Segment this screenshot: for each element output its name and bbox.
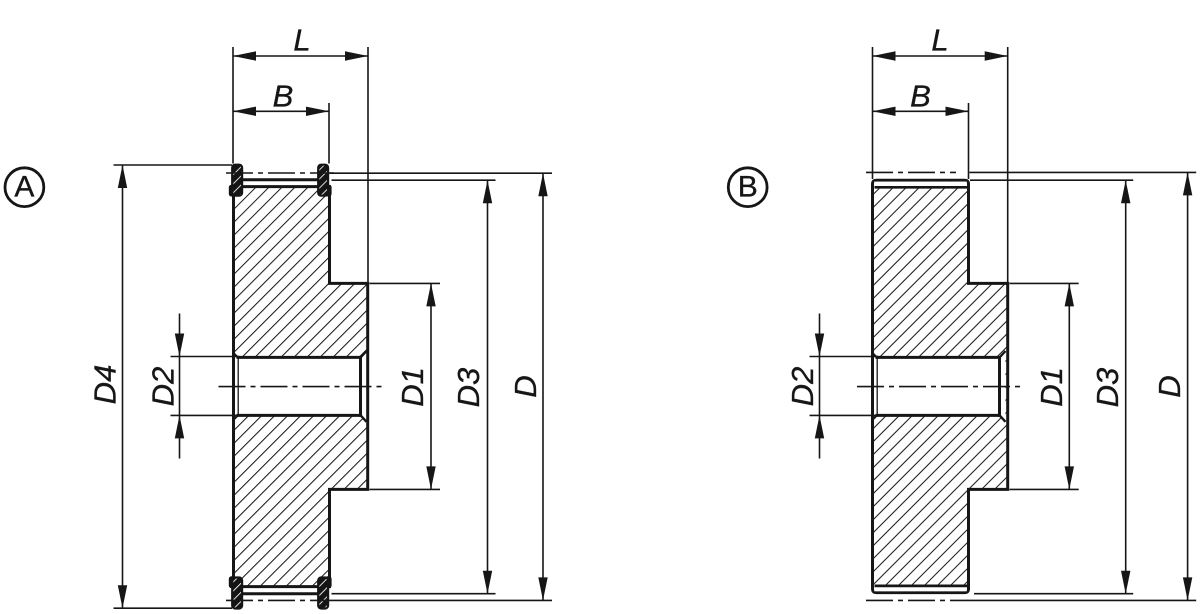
svg-text:D1: D1 <box>1034 367 1069 407</box>
svg-text:L: L <box>293 23 310 58</box>
svg-text:D3: D3 <box>1090 368 1125 408</box>
svg-text:D: D <box>508 375 543 397</box>
svg-text:D1: D1 <box>395 367 430 407</box>
svg-text:D2: D2 <box>145 367 180 407</box>
svg-text:L: L <box>931 23 948 58</box>
svg-text:B: B <box>910 79 931 114</box>
svg-text:D2: D2 <box>785 367 820 407</box>
svg-text:D3: D3 <box>451 368 486 408</box>
svg-text:D4: D4 <box>87 365 122 405</box>
svg-text:B: B <box>738 171 758 204</box>
svg-text:D: D <box>1152 375 1187 397</box>
svg-text:A: A <box>14 171 34 204</box>
svg-text:B: B <box>273 79 294 114</box>
